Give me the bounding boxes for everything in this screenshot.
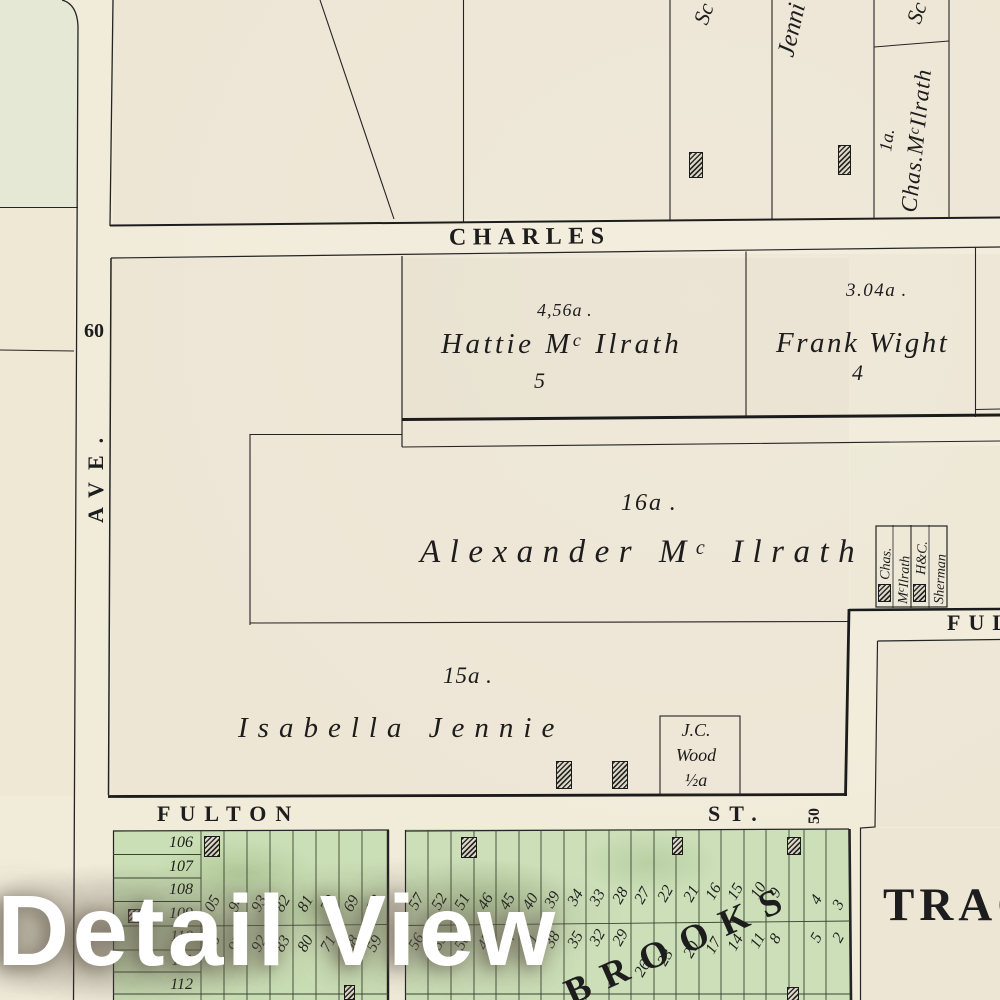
svg-text:McIlrath: McIlrath xyxy=(895,555,914,605)
svg-text:Chas.McIlrath: Chas.McIlrath xyxy=(896,67,936,213)
svg-text:H&C.: H&C. xyxy=(914,541,931,577)
svg-text:Jenni: Jenni xyxy=(773,0,811,59)
svg-text:Sc: Sc xyxy=(901,0,932,27)
svg-text:Sherman: Sherman xyxy=(932,554,950,604)
svg-text:Chas.: Chas. xyxy=(878,547,895,580)
svg-text:Sc: Sc xyxy=(688,0,719,28)
svg-text:1a.: 1a. xyxy=(875,127,898,152)
